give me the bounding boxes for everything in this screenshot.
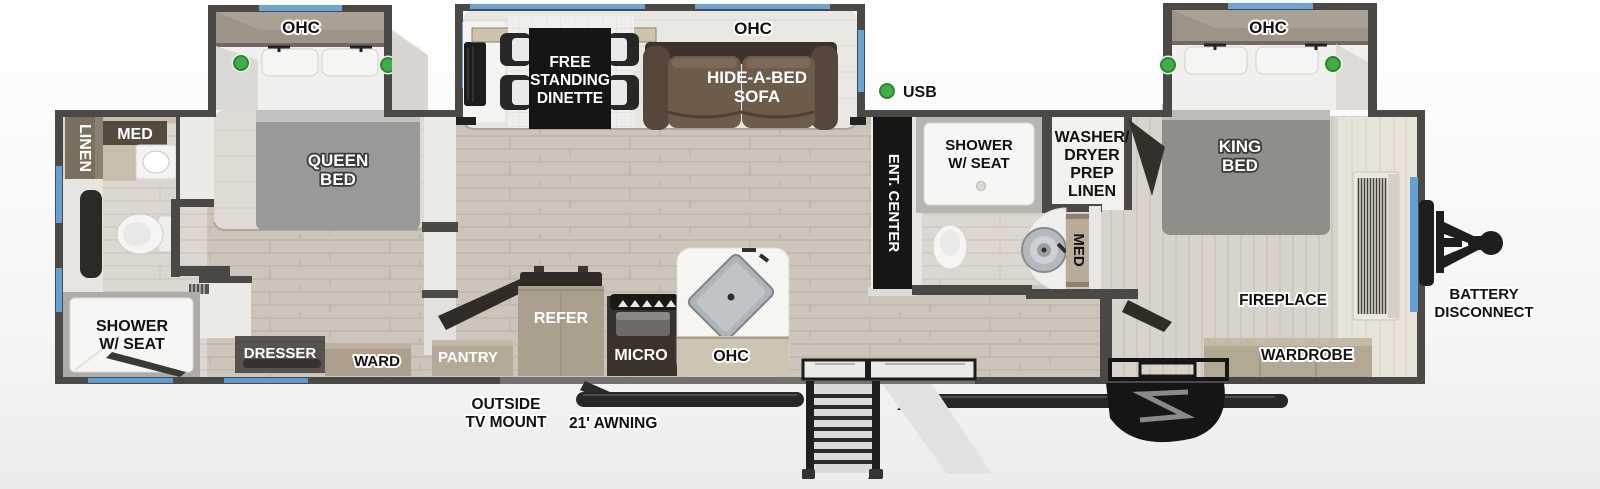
svg-text:OUTSIDE: OUTSIDE <box>472 396 541 413</box>
svg-text:WARD: WARD <box>354 353 400 370</box>
svg-text:BED: BED <box>1222 156 1258 175</box>
svg-text:WARDROBE: WARDROBE <box>1261 347 1353 364</box>
svg-text:MED: MED <box>1070 233 1087 267</box>
svg-text:USB: USB <box>903 84 937 101</box>
svg-text:MICRO: MICRO <box>614 347 667 364</box>
svg-text:STANDING: STANDING <box>530 72 610 89</box>
svg-text:W/ SEAT: W/ SEAT <box>99 336 165 353</box>
svg-text:DINETTE: DINETTE <box>537 90 603 107</box>
svg-text:PANTRY: PANTRY <box>438 349 498 366</box>
svg-text:SHOWER: SHOWER <box>96 318 168 335</box>
svg-text:SHOWER: SHOWER <box>945 137 1013 154</box>
svg-text:TV MOUNT: TV MOUNT <box>466 414 547 431</box>
svg-text:QUEEN: QUEEN <box>308 151 368 170</box>
svg-text:FIREPLACE: FIREPLACE <box>1239 292 1327 309</box>
svg-text:OHC: OHC <box>734 19 772 38</box>
svg-text:FREE: FREE <box>549 54 590 71</box>
svg-text:ENT. CENTER: ENT. CENTER <box>885 154 902 253</box>
svg-text:REFER: REFER <box>534 310 589 327</box>
svg-text:SOFA: SOFA <box>734 87 780 106</box>
svg-text:KING: KING <box>1219 137 1262 156</box>
svg-text:MED: MED <box>117 126 153 143</box>
svg-text:LINEN: LINEN <box>76 124 93 172</box>
svg-text:21' AWNING: 21' AWNING <box>569 415 657 432</box>
svg-text:DISCONNECT: DISCONNECT <box>1434 304 1533 321</box>
svg-text:HIDE-A-BED: HIDE-A-BED <box>707 68 807 87</box>
svg-text:WASHER/: WASHER/ <box>1055 129 1130 146</box>
svg-text:DRESSER: DRESSER <box>244 345 317 362</box>
svg-text:OHC: OHC <box>713 348 749 365</box>
svg-text:OHC: OHC <box>282 18 320 37</box>
svg-text:PREP: PREP <box>1070 165 1114 182</box>
svg-text:DRYER: DRYER <box>1064 147 1120 164</box>
svg-text:BATTERY: BATTERY <box>1449 286 1518 303</box>
svg-text:BED: BED <box>320 170 356 189</box>
svg-text:W/ SEAT: W/ SEAT <box>948 155 1009 172</box>
svg-text:OHC: OHC <box>1249 18 1287 37</box>
svg-text:LINEN: LINEN <box>1068 183 1116 200</box>
